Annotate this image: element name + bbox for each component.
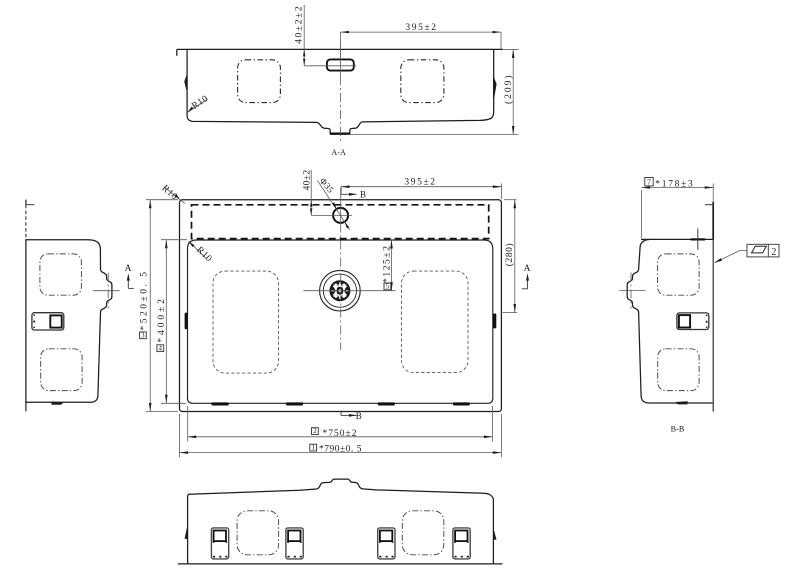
svg-text:*125±2: *125±2 [383, 244, 393, 283]
svg-text:A: A [524, 264, 531, 274]
svg-text:40±2±2: 40±2±2 [294, 5, 304, 44]
svg-text:395±2: 395±2 [404, 178, 436, 188]
svg-text:2: 2 [313, 427, 317, 435]
svg-text:395±2: 395±2 [405, 23, 437, 33]
svg-text:(209): (209) [503, 73, 514, 104]
svg-text:4: 4 [159, 344, 163, 352]
svg-text:7: 7 [647, 177, 651, 186]
svg-text:40±2: 40±2 [302, 169, 312, 190]
svg-text:A: A [125, 264, 132, 274]
svg-text:B: B [360, 189, 366, 199]
svg-text:B-B: B-B [671, 425, 685, 434]
svg-text:B: B [356, 411, 362, 421]
svg-text:1: 1 [311, 444, 315, 452]
svg-text:*790±0. 5: *790±0. 5 [319, 445, 362, 455]
svg-text:*400±2: *400±2 [157, 296, 167, 342]
svg-text:3: 3 [141, 331, 145, 339]
svg-text:(280): (280) [504, 243, 515, 267]
svg-text:*178±3: *178±3 [655, 179, 694, 189]
svg-text:2: 2 [771, 247, 776, 258]
svg-text:A-A: A-A [331, 148, 346, 157]
svg-text:*750±2: *750±2 [323, 429, 358, 439]
svg-text:*520±0. 5: *520±0. 5 [140, 270, 150, 331]
